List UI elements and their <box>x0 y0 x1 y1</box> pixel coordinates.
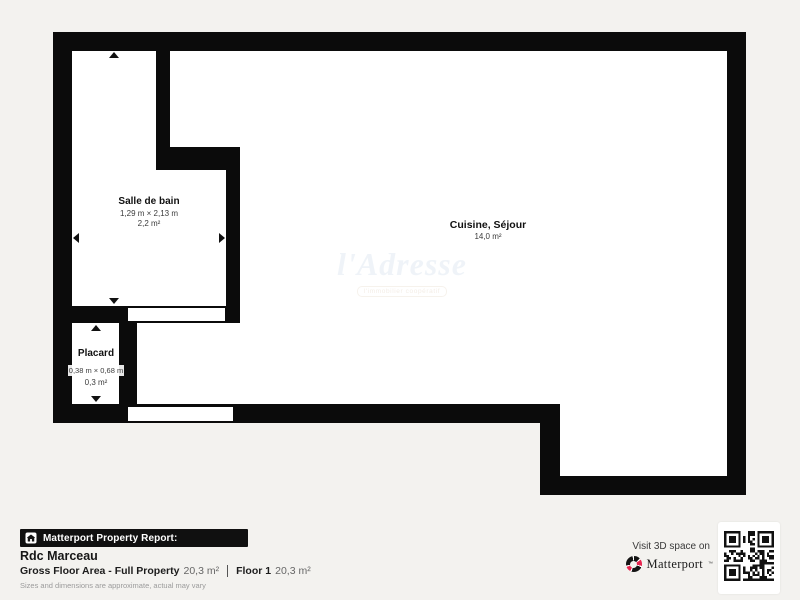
room-name: Salle de bain <box>72 195 226 208</box>
wall-bathroom-step <box>156 147 240 170</box>
measure-arrow-up-closet <box>91 325 101 331</box>
metrics-divider <box>227 565 228 577</box>
visit-3d-text: Visit 3D space on <box>570 541 710 552</box>
door-opening-bathroom <box>128 308 225 321</box>
measure-arrow-down-closet <box>91 396 101 402</box>
floor-value: 20,3 m² <box>275 565 311 577</box>
floor-title: Rdc Marceau <box>20 549 98 563</box>
gross-area-value: 20,3 m² <box>183 565 219 577</box>
room-label-closet: Placard 0,38 m × 0,68 m 0,3 m² <box>60 347 132 388</box>
measure-arrow-down-bathroom <box>109 298 119 304</box>
matterport-brand-link[interactable]: Matterport ™ <box>570 556 713 572</box>
matterport-logo-icon <box>626 556 642 572</box>
area-metrics: Gross Floor Area - Full Property 20,3 m²… <box>20 565 311 577</box>
measure-arrow-up-bathroom <box>109 52 119 58</box>
wall-bathroom-right-upper <box>156 51 170 147</box>
measure-arrow-right-bathroom <box>219 233 225 243</box>
room-area: 2,2 m² <box>72 219 226 229</box>
house-icon <box>25 532 37 544</box>
matterport-floorplan-report: { "plan": { "rooms": [ { "name": "Salle … <box>0 0 800 600</box>
measure-arrow-left-bathroom <box>73 233 79 243</box>
room-name: Placard <box>60 347 132 360</box>
wall-outer-bottom-right <box>540 476 746 495</box>
interior-area-bottom-right <box>560 405 727 476</box>
room-name: Cuisine, Séjour <box>388 219 588 232</box>
wall-outer-top <box>53 32 746 51</box>
disclaimer-text: Sizes and dimensions are approximate, ac… <box>20 581 206 590</box>
trademark-mark: ™ <box>708 560 713 568</box>
wall-bathroom-right-lower <box>226 170 240 306</box>
qr-code[interactable] <box>718 522 780 594</box>
report-header-bar: Matterport Property Report: <box>20 529 248 547</box>
room-label-kitchen-living: Cuisine, Séjour 14,0 m² <box>388 219 588 242</box>
report-bar-label: Matterport Property Report: <box>43 533 177 544</box>
room-area: 14,0 m² <box>388 232 588 242</box>
room-dimensions: 0,38 m × 0,68 m <box>68 365 124 376</box>
room-area: 0,3 m² <box>60 378 132 388</box>
room-label-bathroom: Salle de bain 1,29 m × 2,13 m 2,2 m² <box>72 195 226 229</box>
wall-outer-right <box>727 32 746 495</box>
matterport-wordmark: Matterport <box>647 557 703 572</box>
floor-label: Floor 1 <box>236 565 271 577</box>
room-dimensions: 1,29 m × 2,13 m <box>72 208 226 219</box>
floor-plan: l'Adresse l'immobilier coopératif Salle … <box>0 0 800 520</box>
door-opening-entry <box>128 407 233 421</box>
gross-area-label: Gross Floor Area - Full Property <box>20 565 179 577</box>
